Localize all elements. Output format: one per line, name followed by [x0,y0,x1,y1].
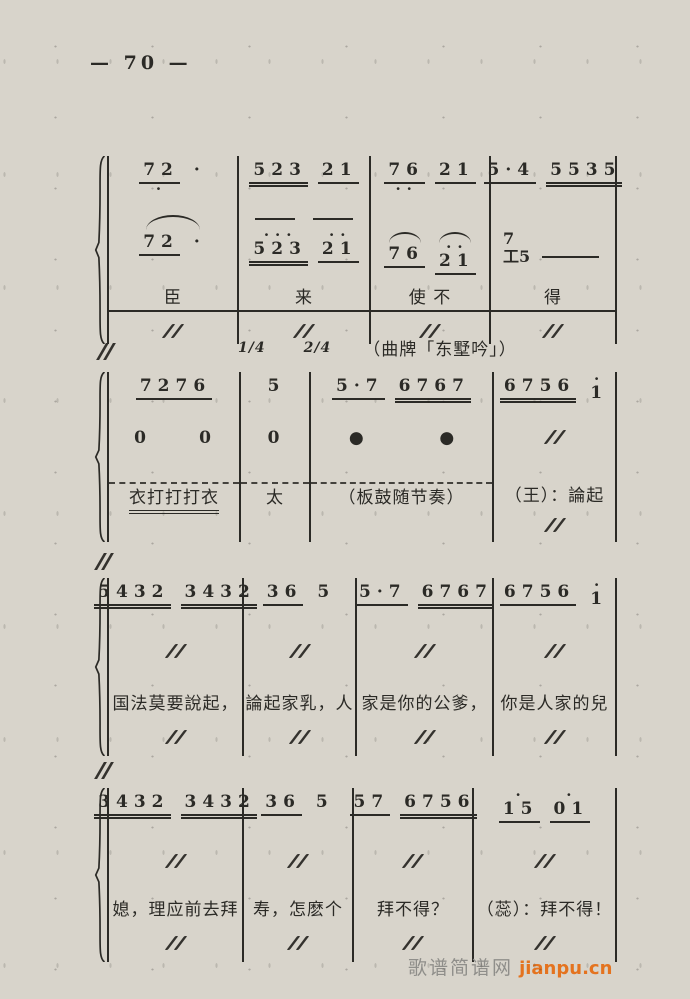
note-group: ·15 [499,788,540,823]
lyric-text: 来 [295,287,313,310]
lyric-line: 家是你的公爹， [357,690,492,716]
note-group: 0 [195,424,218,450]
note-digits: 01 [550,799,591,823]
lyric-line: 衣打打打衣 [109,482,239,514]
row-lyr: 拜不得？ [354,896,472,930]
note-group: 72 [139,228,180,256]
note-digits: 5 [264,376,287,398]
measure: 76··2176··21使 不 [371,156,491,344]
row-v2 [494,424,615,482]
simile-mark-icon [413,730,437,745]
row-lyr: 来 [239,284,369,318]
note-digits: 5432 [94,582,170,609]
row-sim [244,638,355,690]
note-group: 57 [350,788,391,816]
lyric-text: 衣打打打衣 [129,487,219,514]
lyric-line: 来 [239,284,369,312]
note-digits: 21 [435,251,476,275]
lyric-text: 得 [544,287,562,310]
note-digits: 1 [586,589,609,611]
note-digits: 6767 [418,582,494,609]
row-sim2 [494,724,615,756]
measure: 6756·1（王）：論起 [494,372,617,542]
music-system: 54323432国法莫要說起，365論起家乳，人5·76767家是你的公爹，67… [92,578,617,756]
simile-mark-icon [543,730,567,745]
note-group: 36 [263,578,304,606]
lyric-line: 你是人家的兒 [494,690,615,716]
row-v1: 5·76767 [357,578,492,638]
note-group: 5432 [94,578,170,609]
note-group: 6756 [400,788,476,819]
note-digits: 6767 [395,376,471,403]
note-group: 6767 [395,372,471,403]
lyric-text: 拜不得？ [377,899,449,922]
note-digits: 5535 [546,160,622,187]
note-digits: 工5 [503,247,530,266]
simile-mark-icon [533,854,557,869]
note-group: 523 [249,156,308,187]
row-lyr: 家是你的公爹， [357,690,492,724]
score-page: — 70 — 1/4 2/4 （曲牌「东墅吟」） 72··72·臣52321··… [0,0,690,999]
octave-dot-above: · [562,792,577,799]
row-lyr: 使 不 [371,284,489,318]
note-group: 0 [264,424,287,450]
simile-mark-icon [164,644,188,659]
row-v1: 52321 [239,156,369,212]
note-digits: 0 [195,428,218,450]
note-digits: · [190,232,207,254]
measure-group: 727600衣打打打衣50太5·76767●●（板鼓随节奏）6756·1（王）：… [107,372,617,542]
row-v1: 5·76767 [311,372,492,424]
note-digits: 0 [264,428,287,450]
measure: 5·76767家是你的公爹， [357,578,494,756]
row-v1: 72·· [109,156,237,212]
lyric-line: （板鼓随节奏） [311,482,492,510]
measure: 5·455357工5得 [491,156,617,344]
simile-mark-icon [292,324,316,339]
note-digits: 6756 [500,376,576,403]
row-lyr: 衣打打打衣 [109,482,239,542]
simile-mark-icon [161,324,185,339]
lyric-text: （板鼓随节奏） [339,487,465,510]
row-sim [239,318,369,344]
row-sim [474,848,615,896]
row-v2: 7工5 [491,228,615,284]
note-group: ● [348,424,365,450]
note-group: 6767 [418,578,494,609]
duration-dash-icon [542,256,599,258]
row-v1: 5·45535 [491,156,615,212]
watermark-site-name: 歌谱简谱网 [408,957,513,979]
note-group: 5 [312,788,335,814]
row-v2: 00 [109,424,239,482]
note-group: 21 [318,156,359,184]
note-group: 72· [139,156,180,194]
system-brace-icon [92,156,107,344]
note-group: 6756 [500,372,576,403]
simile-mark-icon [288,644,312,659]
note-digits: 5·7 [355,582,408,606]
row-mid [109,212,237,228]
lyric-line: 寿，怎麽个 [244,896,352,922]
note-digits: ● [348,428,365,450]
octave-dot-above: · [590,376,605,383]
note-digits: 21 [318,239,359,263]
simile-mark-icon [286,936,310,951]
row-lyr: 得 [491,284,615,318]
measure-group: 54323432国法莫要說起，365論起家乳，人5·76767家是你的公爹，67… [107,578,617,756]
note-group: ·01 [550,788,591,823]
watermark: 歌谱简谱网 jianpu.cn [408,953,612,980]
simile-mark-icon [164,730,188,745]
note-group: ··21 [318,228,359,263]
note-digits: 76 [384,244,425,268]
page-number: — 70 — [90,52,192,74]
note-digits: 5·7 [332,376,385,400]
simile-mark-icon [533,936,557,951]
lyric-text: 使 不 [409,287,451,310]
note-group: 5·7 [355,578,408,606]
music-system: 727600衣打打打衣50太5·76767●●（板鼓随节奏）6756·1（王）：… [92,372,617,542]
lyric-line: 論起家乳，人 [244,690,355,716]
lyric-line: 得 [491,284,615,312]
lyric-line: 臣 [109,284,237,312]
note-digits: 0 [130,428,153,450]
octave-dot-below: · [152,185,167,194]
note-group: 21 [435,156,476,184]
note-digits: 5 [313,582,336,604]
row-lyr: 国法莫要說起， [109,690,242,724]
note-group: 3432 [94,788,170,819]
measure: 576756拜不得？ [354,788,474,962]
row-mid [371,212,489,228]
simile-mark-icon [413,644,437,659]
measure: 6756·1你是人家的兒 [494,578,617,756]
note-digits: 15 [499,799,540,823]
measure: ·15·01（蕊）：拜不得！ [474,788,617,962]
note-group: ···523 [249,228,308,266]
simile-mark-icon [541,324,565,339]
measure: 365寿，怎麽个 [244,788,354,962]
note-digits: 21 [318,160,359,184]
row-v1: 7276 [109,372,239,424]
lyric-text: 国法莫要說起， [113,693,239,716]
note-group: · [190,228,207,254]
octave-dot-above: ··· [260,232,298,239]
system-brace-icon [92,372,107,542]
row-v1: 576756 [354,788,472,848]
lyric-text: （王）：論起 [505,485,605,508]
row-sim [357,638,492,690]
note-digits: 5·4 [484,160,537,184]
note-group: 7276 [136,372,212,400]
row-sim [109,848,242,896]
tie-mark-icon [313,218,353,220]
lyric-text: 家是你的公爹， [362,693,488,716]
row-lyr: 你是人家的兒 [494,690,615,724]
measure: 72··72·臣 [109,156,239,344]
octave-dot-above: ·· [325,232,351,239]
row-sim2 [357,724,492,756]
row-lyr: 論起家乳，人 [244,690,355,724]
section-repeat-icon [94,553,114,571]
measure: 365論起家乳，人 [244,578,357,756]
row-v2: 76··21 [371,228,489,284]
note-digits: 36 [261,792,302,816]
row-lyr: （蕊）：拜不得！ [474,896,615,930]
lyric-text: 太 [266,487,284,510]
row-sim [109,638,242,690]
row-v1: 6756·1 [494,372,615,424]
simile-mark-icon [401,936,425,951]
note-digits: · [190,160,207,182]
music-system: 34323432媳，理应前去拜365寿，怎麽个576756拜不得？·15·01（… [92,788,617,962]
note-digits: 1 [586,383,609,405]
note-digits: ● [438,428,455,450]
measure: 5·76767●●（板鼓随节奏） [311,372,494,542]
measure-group: 34323432媳，理应前去拜365寿，怎麽个576756拜不得？·15·01（… [107,788,617,962]
row-v1: 365 [244,788,352,848]
note-group: 76 [384,228,425,268]
row-lyr: （板鼓随节奏） [311,482,492,542]
lyric-text: 臣 [164,287,182,310]
lyric-text: 寿，怎麽个 [253,899,343,922]
stacked-bottom: 工5 [503,247,605,266]
note-digits: 36 [263,582,304,606]
measure: 52321···523··21来 [239,156,371,344]
row-lyr: 臣 [109,284,237,318]
row-sim [354,848,472,896]
slur-arc-icon [389,232,421,243]
lyric-text: 你是人家的兒 [501,693,609,716]
note-digits: 57 [350,792,391,816]
system-brace [92,156,107,344]
lyric-text: 論起家乳，人 [246,693,354,716]
row-v2: ●● [311,424,492,482]
note-digits: 3432 [94,792,170,819]
row-sim [371,318,489,344]
simile-mark-icon [288,730,312,745]
note-group: 76·· [384,156,425,194]
simile-mark-icon [164,936,188,951]
measure: 54323432国法莫要說起， [109,578,244,756]
note-digits: 523 [249,239,308,266]
note-digits: 6756 [500,582,576,606]
note-digits: 523 [249,160,308,187]
simile-mark-icon [543,518,567,533]
row-v1: 5 [241,372,309,424]
note-digits: 72 [139,232,180,256]
note-group: 5·4 [484,156,537,184]
lyric-line: 使 不 [371,284,489,312]
lyric-line: 拜不得？ [354,896,472,922]
measure-group: 72··72·臣52321···523··21来76··2176··21使 不5… [107,156,617,344]
lyric-line: （王）：論起 [494,482,615,508]
row-v1: ·15·01 [474,788,615,848]
octave-dot-above: · [512,792,527,799]
lyric-text: （蕊）：拜不得！ [477,899,613,922]
row-sim2 [244,930,352,962]
simile-mark-icon [543,430,567,445]
simile-mark-icon [164,854,188,869]
row-lyr: 媳，理应前去拜 [109,896,242,930]
note-group: ·1 [586,578,609,611]
octave-dot-above: ·· [442,244,468,251]
octave-dot-below: ·· [391,185,417,194]
row-v1: 54323432 [109,578,242,638]
row-sim [494,638,615,690]
lyric-line: 媳，理应前去拜 [109,896,242,922]
note-group: 5 [313,578,336,604]
note-digits: 7276 [136,376,212,400]
row-v1: 76··21 [371,156,489,212]
row-lyr: 寿，怎麽个 [244,896,352,930]
section-repeat-icon [94,762,114,780]
row-v2: 0 [241,424,309,482]
measure: 34323432媳，理应前去拜 [109,788,244,962]
row-sim [244,848,352,896]
row-sim [109,318,237,344]
note-digits: 6756 [400,792,476,819]
note-group: 36 [261,788,302,816]
row-v1: 34323432 [109,788,242,848]
row-sim2 [109,724,242,756]
measure: 727600衣打打打衣 [109,372,241,542]
simile-mark-icon [418,324,442,339]
row-v2: ···523··21 [239,228,369,284]
note-group: · [190,156,207,182]
row-v1: 365 [244,578,355,638]
tie-mark-icon [255,218,295,220]
measure: 50太 [241,372,311,542]
note-digits: 7 [503,230,514,247]
note-group: 5 [264,372,287,398]
system-brace [92,372,107,542]
note-group: 5·7 [332,372,385,400]
row-sim [491,318,615,344]
lyric-line: 太 [241,482,309,510]
simile-under-lyric [494,512,615,533]
row-mid [491,212,615,228]
stacked-notes: 7工5 [491,228,615,266]
lyric-line: （蕊）：拜不得！ [474,896,615,922]
note-group: ● [438,424,455,450]
lyric-line: 国法莫要說起， [109,690,242,716]
row-v1: 6756·1 [494,578,615,638]
simile-mark-icon [286,854,310,869]
note-digits: 21 [435,160,476,184]
octave-dot-above: · [590,582,605,589]
row-sim2 [244,724,355,756]
music-system: 72··72·臣52321···523··21来76··2176··21使 不5… [92,156,617,344]
note-group: 5535 [546,156,622,187]
note-digits: 5 [312,792,335,814]
note-group: ··21 [435,228,476,275]
lyric-text: 媳，理应前去拜 [113,899,239,922]
row-lyr: （王）：論起 [494,482,615,542]
watermark-site-url: jianpu.cn [519,958,612,979]
simile-mark-icon [401,854,425,869]
row-lyr: 太 [241,482,309,542]
note-group: 0 [130,424,153,450]
row-sim2 [109,930,242,962]
note-group: ·1 [586,372,609,405]
simile-mark-icon [543,644,567,659]
row-v2: 72· [109,228,237,284]
note-group: 6756 [500,578,576,606]
